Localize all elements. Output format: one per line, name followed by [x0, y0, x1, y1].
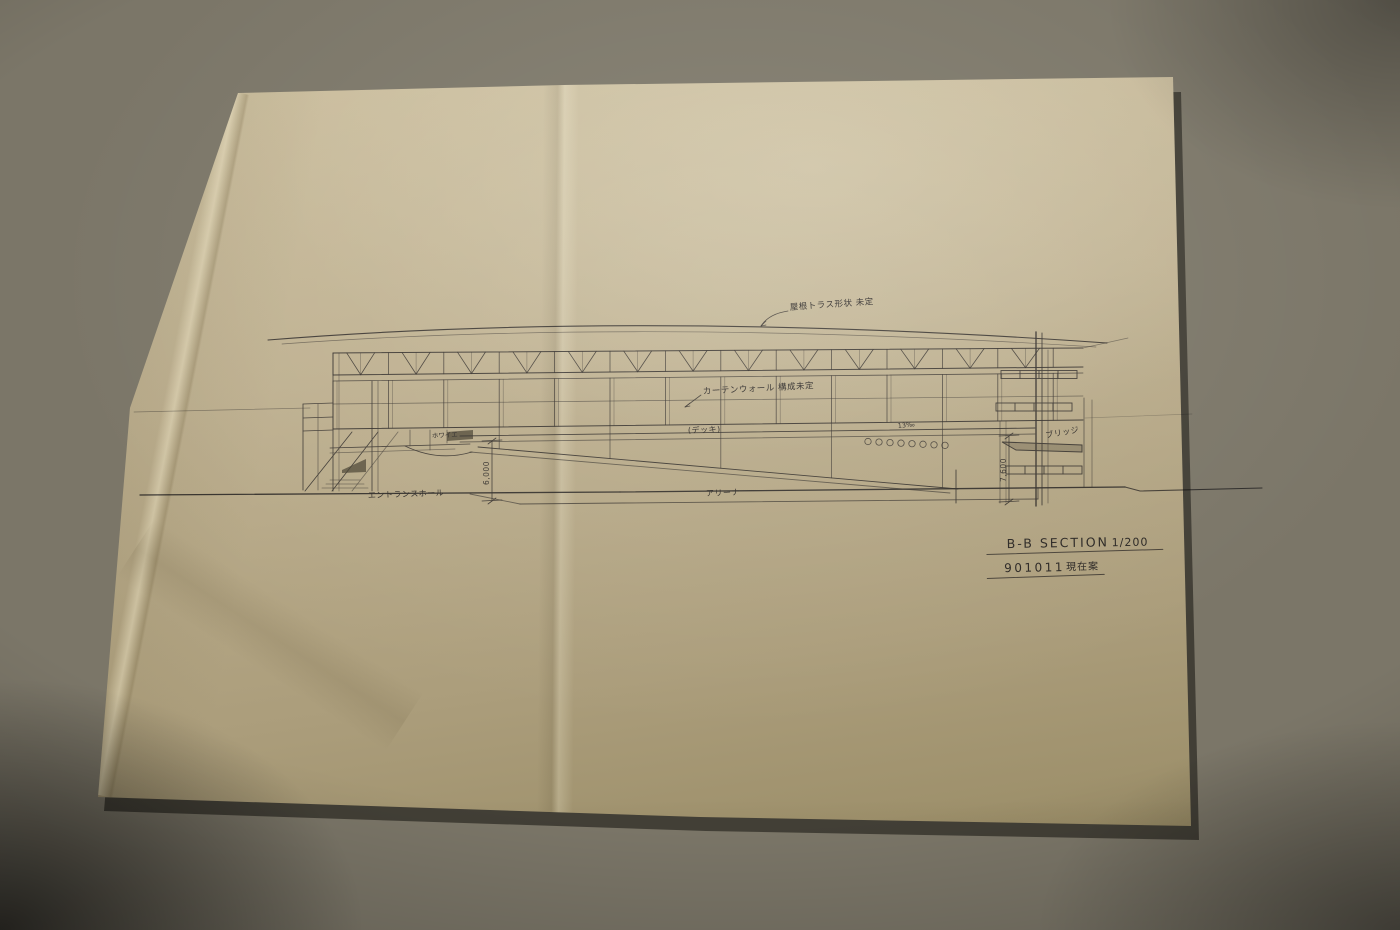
curtain-wall-note: カーテンウォール 構成未定	[703, 380, 815, 397]
drawing-status: 現在案	[1066, 559, 1099, 573]
section-scale: 1/200	[1112, 536, 1149, 550]
deck-label: (デッキ)	[688, 424, 721, 435]
building-section-drawing: 6,000 7,600 屋根トラス形状 未定 カーテンウォール 構成未定 (デッ…	[0, 0, 1400, 930]
title-block: B-B SECTION 1/200 901011 現在案	[987, 533, 1164, 578]
slope-label: 13‰	[897, 420, 915, 430]
drawing-number: 901011	[1004, 560, 1065, 575]
entrance-hall-label: エントランスホール	[368, 488, 445, 500]
roof-truss	[333, 348, 1083, 375]
arena-label: アリーナ	[706, 488, 740, 498]
foyer-label: ホワイエ	[432, 431, 458, 440]
roof-curve	[268, 326, 1128, 348]
dimension-left-value: 6,000	[482, 461, 491, 485]
roof-truss-note: 屋根トラス形状 未定	[789, 296, 874, 313]
bridge-label: ブリッジ	[1045, 424, 1080, 440]
dimension-right-value: 7,600	[999, 458, 1008, 482]
section-title: B-B SECTION	[1007, 534, 1110, 551]
photo-of-drawing: 6,000 7,600 屋根トラス形状 未定 カーテンウォール 構成未定 (デッ…	[0, 0, 1400, 930]
deck-railing-circles	[865, 438, 948, 448]
